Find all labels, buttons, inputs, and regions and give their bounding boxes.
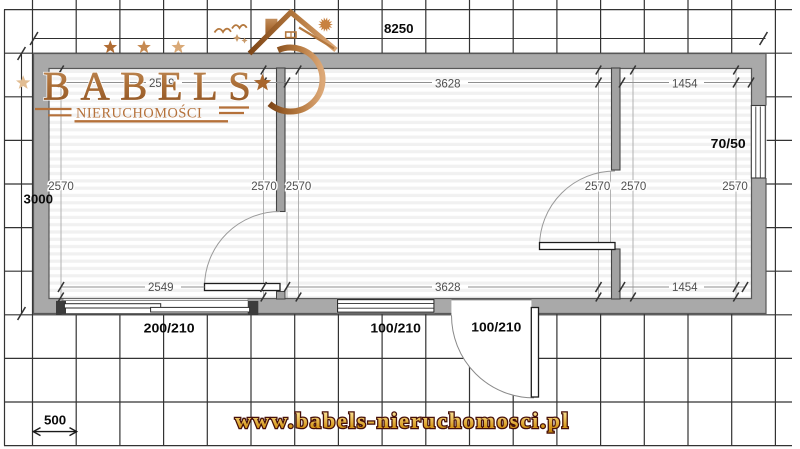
svg-text:BABELS: BABELS	[43, 63, 261, 108]
svg-text:3628: 3628	[435, 282, 461, 294]
svg-text:2570: 2570	[48, 181, 74, 193]
svg-text:3628: 3628	[435, 79, 461, 91]
svg-text:2549: 2549	[148, 282, 174, 294]
svg-text:70/50: 70/50	[711, 136, 746, 151]
svg-text:2570: 2570	[621, 181, 647, 193]
svg-text:2570: 2570	[722, 181, 748, 193]
svg-text:500: 500	[44, 412, 66, 427]
svg-text:1454: 1454	[672, 79, 698, 91]
svg-text:NIERUCHOMOŚCI: NIERUCHOMOŚCI	[76, 104, 202, 121]
svg-text:100/210: 100/210	[370, 320, 421, 335]
svg-text:2570: 2570	[251, 181, 277, 193]
svg-text:100/210: 100/210	[471, 320, 521, 335]
svg-text:8250: 8250	[384, 21, 414, 36]
svg-text:1454: 1454	[672, 282, 698, 294]
svg-text:3000: 3000	[24, 192, 54, 207]
svg-text:2570: 2570	[286, 181, 312, 193]
svg-text:www.babels-nieruchomosci.pl: www.babels-nieruchomosci.pl	[235, 408, 570, 433]
svg-text:200/210: 200/210	[144, 320, 195, 335]
svg-text:2570: 2570	[585, 181, 611, 193]
